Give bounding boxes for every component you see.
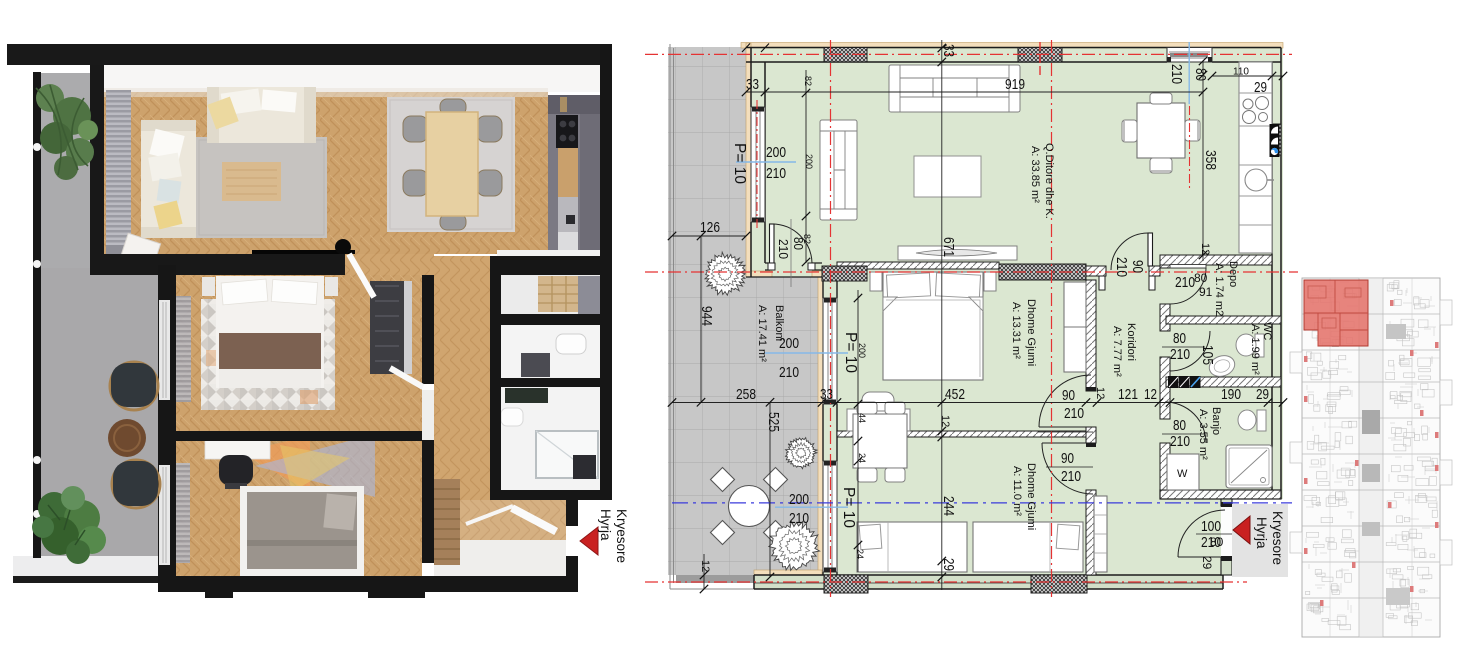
svg-text:A: 33.85 m²: A: 33.85 m² <box>1029 146 1041 203</box>
svg-text:82: 82 <box>802 234 812 244</box>
svg-text:210: 210 <box>1064 405 1084 422</box>
svg-text:210: 210 <box>789 510 809 527</box>
svg-text:W: W <box>1177 468 1188 480</box>
svg-text:210: 210 <box>779 364 799 381</box>
svg-text:Kryesore: Kryesore <box>614 509 629 563</box>
svg-text:WC: WC <box>1261 322 1273 340</box>
svg-text:12: 12 <box>699 560 711 572</box>
svg-text:Hyrja: Hyrja <box>598 509 613 541</box>
svg-text:80: 80 <box>1210 535 1224 549</box>
svg-text:126: 126 <box>700 219 720 236</box>
svg-text:100: 100 <box>1201 518 1221 535</box>
svg-text:82: 82 <box>803 76 813 86</box>
svg-text:24: 24 <box>855 549 865 559</box>
svg-text:A: 3.55 m²: A: 3.55 m² <box>1197 409 1209 460</box>
svg-text:P= 10: P= 10 <box>731 143 748 184</box>
svg-text:12: 12 <box>1094 387 1106 399</box>
svg-text:Q.Ditore dhe K.: Q.Ditore dhe K. <box>1043 143 1055 219</box>
svg-text:80: 80 <box>1194 271 1208 285</box>
svg-text:210: 210 <box>1168 64 1185 84</box>
svg-text:919: 919 <box>1005 76 1025 93</box>
svg-text:29: 29 <box>1200 556 1214 570</box>
svg-text:91: 91 <box>1199 285 1213 299</box>
svg-text:110: 110 <box>1233 67 1249 78</box>
svg-text:200: 200 <box>766 144 786 161</box>
svg-text:12: 12 <box>939 415 951 427</box>
svg-text:Koridori: Koridori <box>1125 323 1137 361</box>
svg-text:33: 33 <box>940 44 957 57</box>
svg-text:210: 210 <box>766 165 786 182</box>
svg-text:Dhome Gjumi: Dhome Gjumi <box>1025 463 1037 530</box>
svg-text:A: 1.74 m2: A: 1.74 m2 <box>1213 263 1225 316</box>
svg-text:Balkoni: Balkoni <box>773 305 785 341</box>
svg-text:A: 1.99 m²: A: 1.99 m² <box>1249 324 1261 375</box>
svg-text:44: 44 <box>857 413 867 423</box>
svg-text:A: 13.31 m²: A: 13.31 m² <box>1010 302 1022 359</box>
svg-text:200: 200 <box>789 491 809 508</box>
svg-text:190: 190 <box>1221 386 1241 403</box>
svg-text:80: 80 <box>1192 68 1209 81</box>
svg-text:33: 33 <box>746 76 759 93</box>
svg-text:671: 671 <box>940 237 957 257</box>
svg-text:210: 210 <box>1061 468 1081 485</box>
svg-text:80: 80 <box>1173 417 1186 434</box>
svg-text:200: 200 <box>804 154 814 169</box>
svg-text:P= 10: P= 10 <box>842 332 859 373</box>
svg-text:29: 29 <box>1256 386 1269 403</box>
svg-text:A: 11.0 m²: A: 11.0 m² <box>1011 466 1023 516</box>
svg-text:A: 7.77 m²: A: 7.77 m² <box>1111 326 1123 377</box>
svg-text:90: 90 <box>1061 450 1074 467</box>
svg-text:12: 12 <box>1144 386 1157 403</box>
svg-text:29: 29 <box>1254 79 1267 96</box>
svg-text:358: 358 <box>1202 150 1219 170</box>
svg-text:210: 210 <box>1170 433 1190 450</box>
svg-text:90: 90 <box>1062 387 1075 404</box>
svg-text:33: 33 <box>820 386 833 403</box>
svg-text:29: 29 <box>940 558 957 571</box>
svg-text:Depo: Depo <box>1227 261 1239 287</box>
svg-text:P= 10: P= 10 <box>840 487 857 528</box>
svg-text:210: 210 <box>1175 274 1195 291</box>
svg-text:Hyrja: Hyrja <box>1254 517 1269 549</box>
svg-text:210: 210 <box>1113 257 1130 277</box>
svg-text:Kryesore: Kryesore <box>1270 511 1285 565</box>
svg-text:244: 244 <box>940 496 957 516</box>
svg-text:A: 17.41 m²: A: 17.41 m² <box>756 305 768 362</box>
svg-text:24: 24 <box>857 453 867 463</box>
svg-text:210: 210 <box>776 239 791 259</box>
svg-text:210: 210 <box>1170 346 1190 363</box>
svg-text:105: 105 <box>1199 345 1216 365</box>
svg-text:Dhome Gjumi: Dhome Gjumi <box>1025 299 1037 366</box>
svg-text:80: 80 <box>1173 330 1186 347</box>
svg-text:452: 452 <box>945 386 965 403</box>
svg-text:12: 12 <box>1199 243 1211 255</box>
svg-text:944: 944 <box>698 306 715 326</box>
svg-text:121: 121 <box>1118 386 1138 403</box>
svg-text:Banjo: Banjo <box>1210 407 1222 435</box>
svg-text:90: 90 <box>1129 260 1146 273</box>
svg-text:525: 525 <box>765 412 782 432</box>
svg-text:258: 258 <box>736 386 756 403</box>
